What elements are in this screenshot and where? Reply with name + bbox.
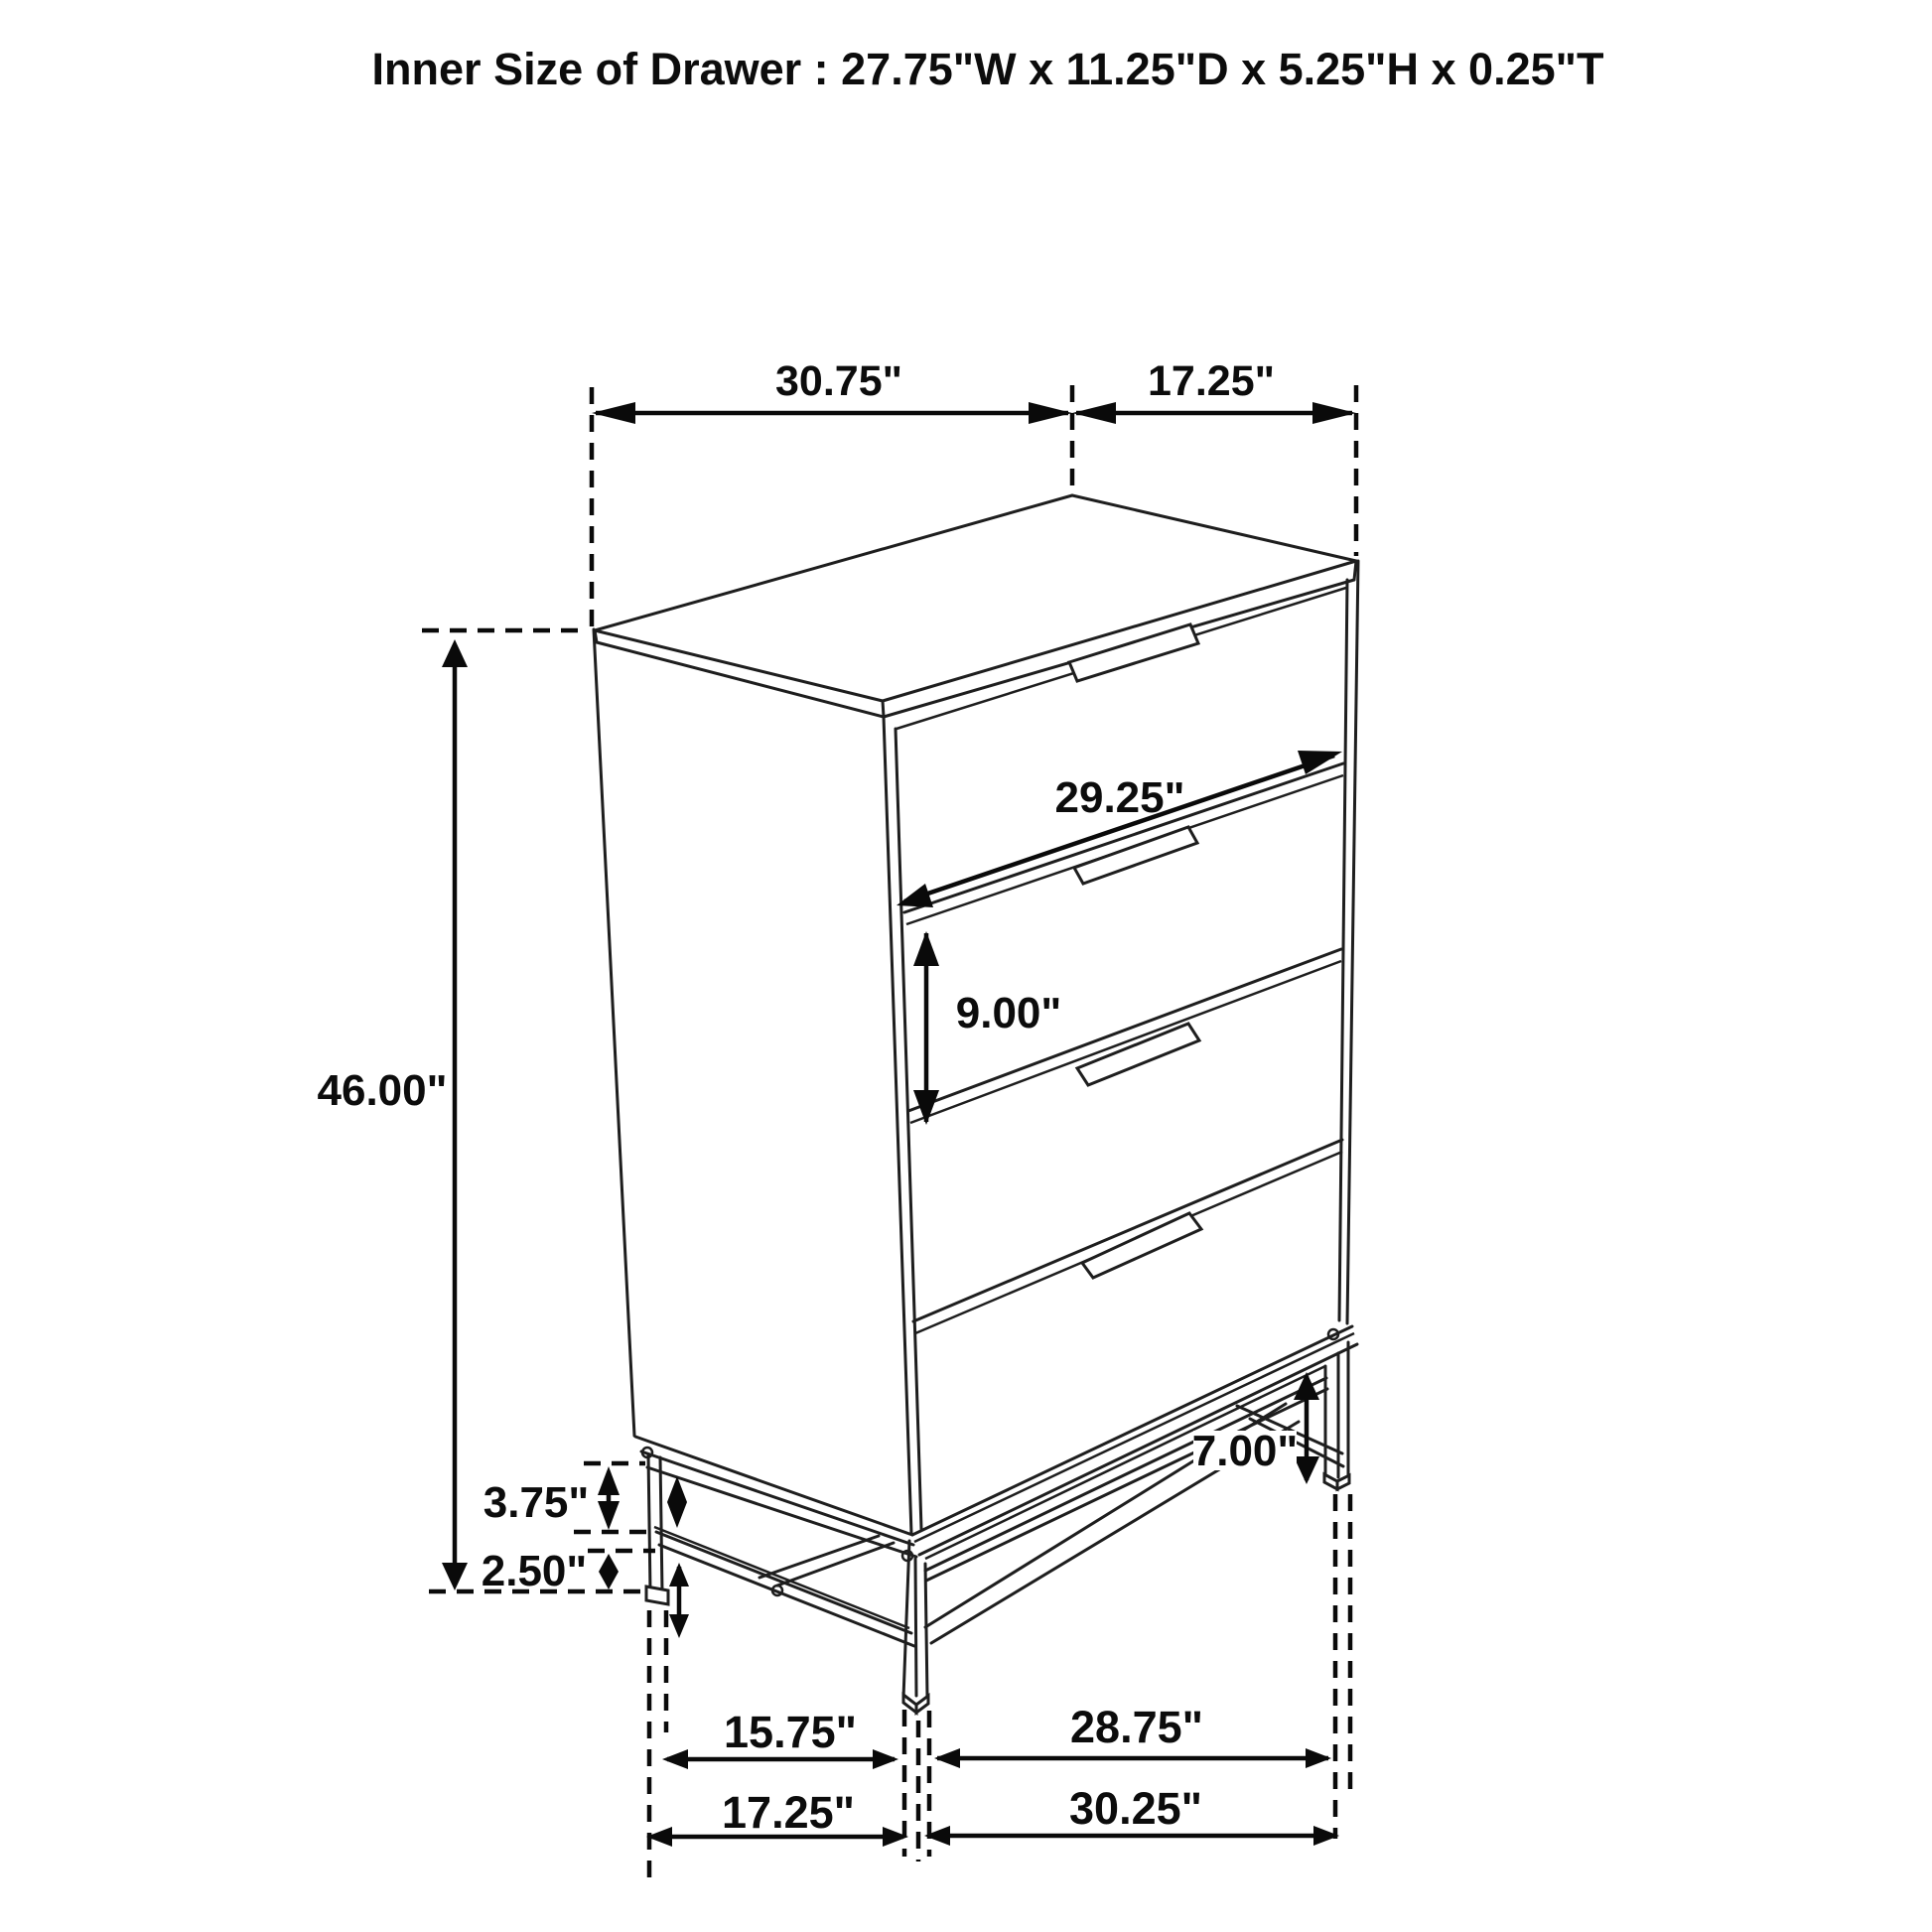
svg-text:3.75": 3.75": [483, 1478, 590, 1527]
svg-text:28.75": 28.75": [1070, 1702, 1203, 1752]
svg-text:46.00": 46.00": [318, 1066, 448, 1115]
svg-text:2.50": 2.50": [482, 1547, 588, 1595]
svg-text:7.00": 7.00": [1192, 1427, 1299, 1475]
svg-text:17.25": 17.25": [1148, 357, 1275, 405]
svg-text:9.00": 9.00": [956, 989, 1062, 1037]
svg-text:15.75": 15.75": [724, 1707, 857, 1757]
svg-text:30.75": 30.75": [775, 357, 902, 405]
svg-text:29.25": 29.25": [1055, 773, 1185, 822]
svg-text:17.25": 17.25": [722, 1787, 855, 1838]
svg-text:Inner Size of Drawer : 27.75"W: Inner Size of Drawer : 27.75"W x 11.25"D…: [372, 44, 1604, 94]
svg-text:30.25": 30.25": [1069, 1783, 1202, 1834]
